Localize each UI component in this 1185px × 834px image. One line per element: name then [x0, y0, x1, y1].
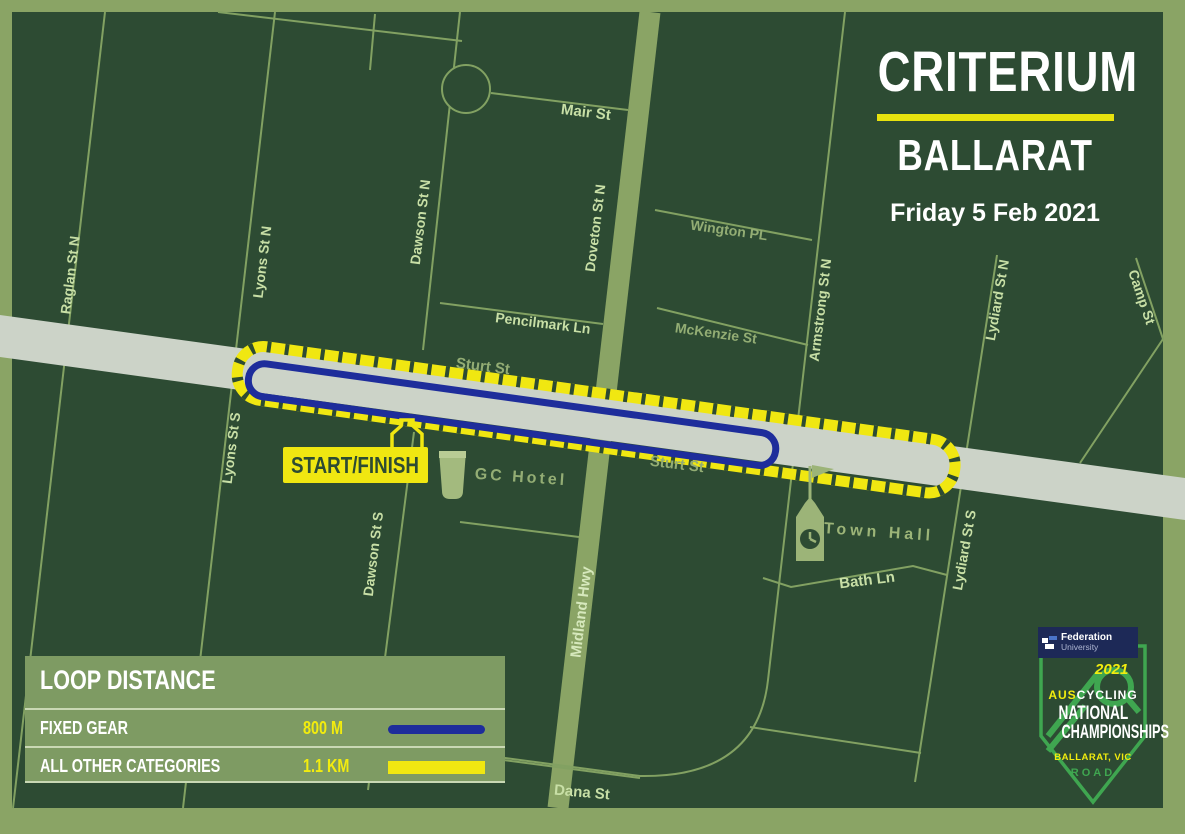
event-date: Friday 5 Feb 2021 [845, 199, 1145, 228]
legend-divider [25, 746, 505, 748]
criterium-course-map-poster: START/FINISH Mair St Raglan St N Lyons S… [0, 0, 1185, 834]
beer-glass-rim [439, 451, 466, 458]
legend-divider [25, 708, 505, 710]
roundabout-icon [442, 65, 490, 113]
logo-championships: CHAMPIONSHIPS [1035, 722, 1151, 744]
all-categories-line-swatch [388, 761, 485, 774]
title-underline [877, 114, 1114, 121]
legend-label: FIXED GEAR [40, 718, 150, 739]
university-name-line2: University [1061, 643, 1112, 652]
legend-divider [25, 781, 505, 783]
logo-discipline: ROAD [1035, 767, 1151, 779]
legend-label: ALL OTHER CATEGORIES [40, 756, 265, 777]
loop-distance-legend: LOOP DISTANCE FIXED GEAR 800 M ALL OTHER… [25, 656, 505, 783]
fixed-gear-line-swatch [388, 725, 485, 734]
event-title: CRITERIUM [845, 44, 1145, 101]
legend-row-fixed-gear: FIXED GEAR 800 M [25, 714, 505, 744]
title-block: CRITERIUM BALLARAT Friday 5 Feb 2021 [845, 44, 1145, 228]
logo-org: AUSCYCLING [1035, 688, 1151, 702]
beer-glass-icon [439, 451, 466, 499]
event-location: BALLARAT [845, 134, 1145, 178]
logo-org-prefix: AUS [1048, 688, 1076, 702]
legend-header: LOOP DISTANCE [40, 665, 260, 696]
logo-year: 2021 [1095, 661, 1128, 678]
championships-logo: Federation University 2021 AUSCYCLING NA… [1035, 624, 1151, 810]
federation-university-banner: Federation University [1038, 627, 1138, 658]
legend-value: 1.1 KM [303, 756, 361, 777]
legend-row-all-other: ALL OTHER CATEGORIES 1.1 KM [25, 752, 505, 782]
federation-university-icon [1042, 636, 1057, 650]
start-finish-label: START/FINISH [291, 452, 419, 478]
logo-org-suffix: CYCLING [1077, 688, 1138, 702]
logo-location: BALLARAT, VIC [1035, 752, 1151, 763]
legend-value: 800 M [303, 718, 353, 739]
